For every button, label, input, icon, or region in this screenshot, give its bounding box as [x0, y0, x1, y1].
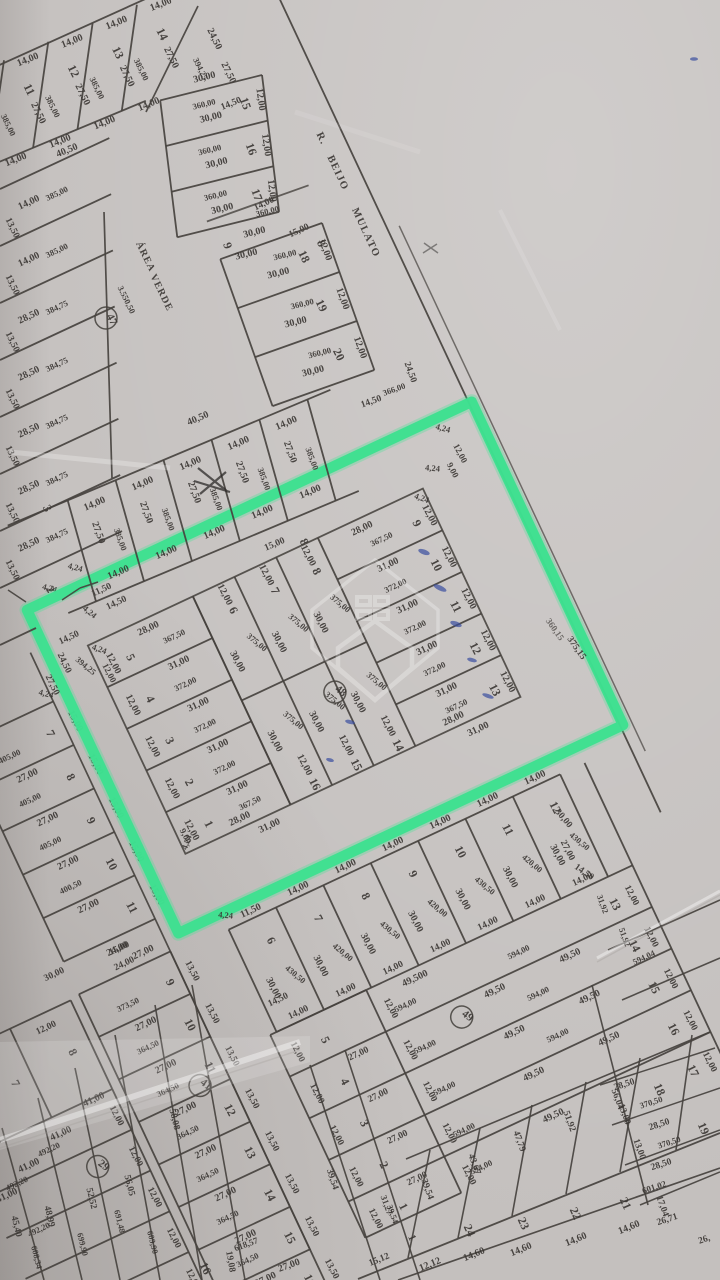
svg-text:4,24: 4,24	[425, 462, 441, 473]
svg-text:4,24: 4,24	[218, 909, 234, 920]
